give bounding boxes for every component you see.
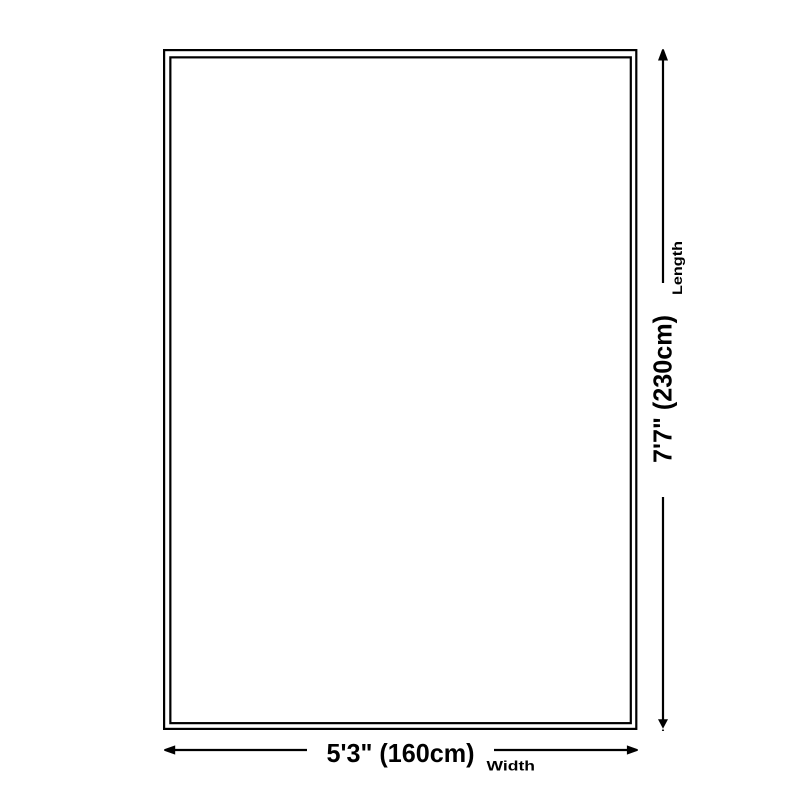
svg-text:5'3" (160cm): 5'3" (160cm) xyxy=(327,738,475,768)
svg-text:7'7" (230cm): 7'7" (230cm) xyxy=(648,315,678,463)
svg-text:Length: Length xyxy=(669,241,685,295)
svg-text:Width: Width xyxy=(487,757,536,773)
